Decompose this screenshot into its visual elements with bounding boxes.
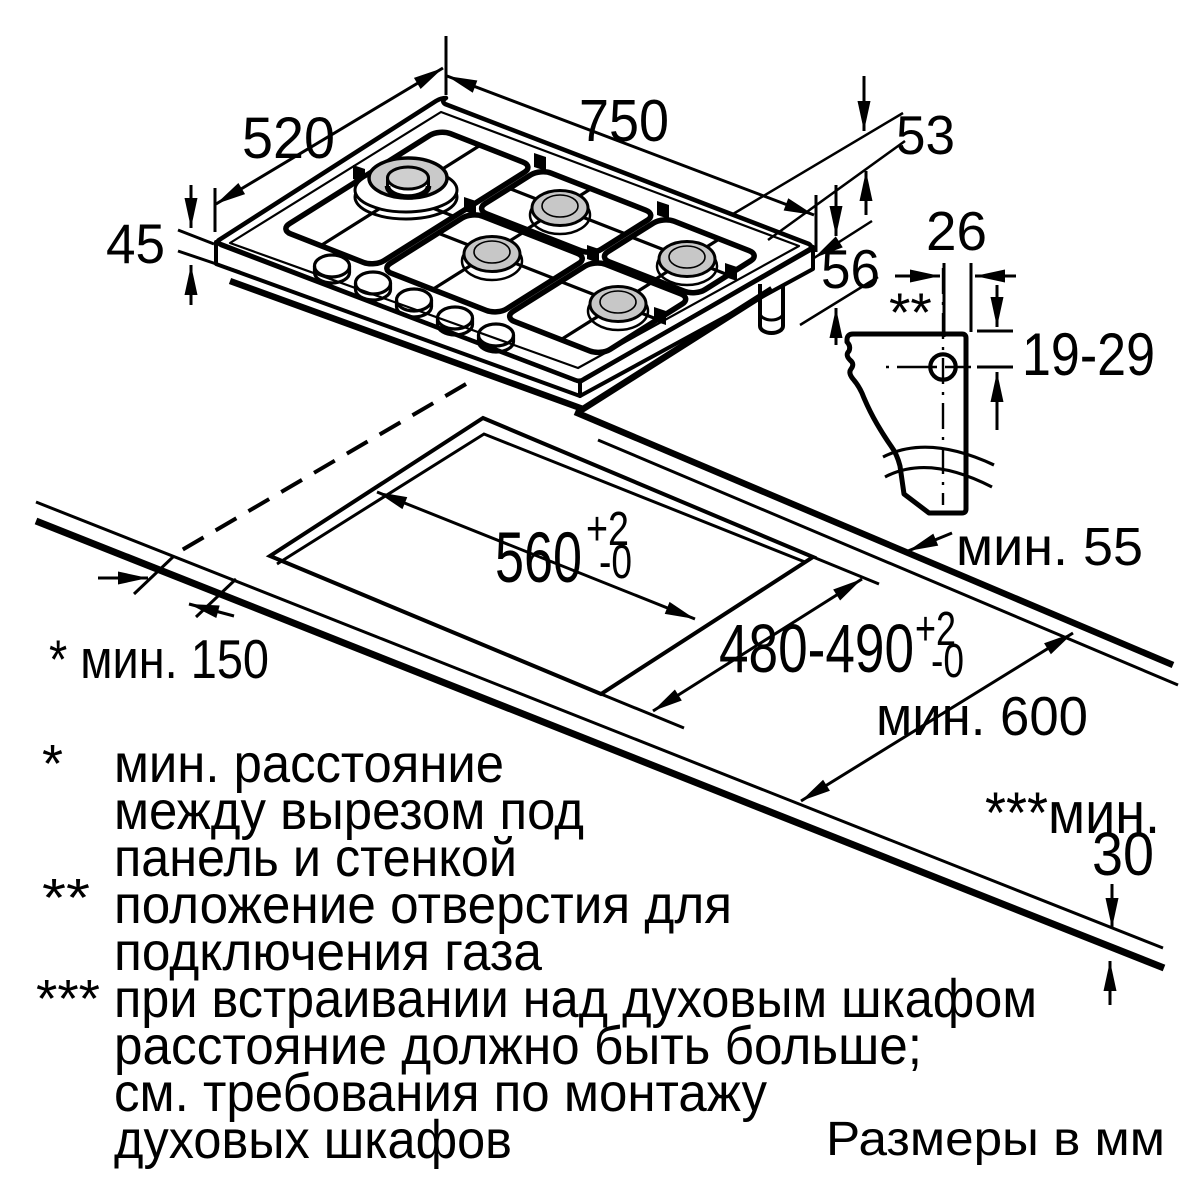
svg-text:-0: -0	[599, 536, 632, 589]
svg-text:45: 45	[106, 212, 165, 275]
svg-text:560: 560	[495, 519, 582, 598]
svg-text:мин. 55: мин. 55	[956, 517, 1143, 577]
svg-text:*: *	[42, 734, 63, 794]
svg-text:19-29: 19-29	[1022, 321, 1155, 388]
svg-text:духовых шкафов: духовых шкафов	[114, 1110, 512, 1170]
svg-text:750: 750	[579, 88, 669, 154]
svg-text:480-490: 480-490	[719, 610, 914, 687]
svg-text:26: 26	[926, 200, 987, 262]
svg-text:* мин. 150: * мин. 150	[49, 628, 269, 690]
svg-text:56: 56	[821, 238, 880, 300]
svg-text:***: ***	[36, 969, 100, 1029]
svg-text:53: 53	[896, 104, 955, 166]
svg-text:-0: -0	[931, 635, 964, 688]
svg-text:мин. 600: мин. 600	[876, 685, 1088, 747]
svg-text:30: 30	[1092, 820, 1154, 888]
svg-text:**: **	[42, 868, 90, 928]
svg-text:520: 520	[242, 106, 335, 171]
svg-text:Размеры в мм: Размеры в мм	[826, 1113, 1165, 1166]
